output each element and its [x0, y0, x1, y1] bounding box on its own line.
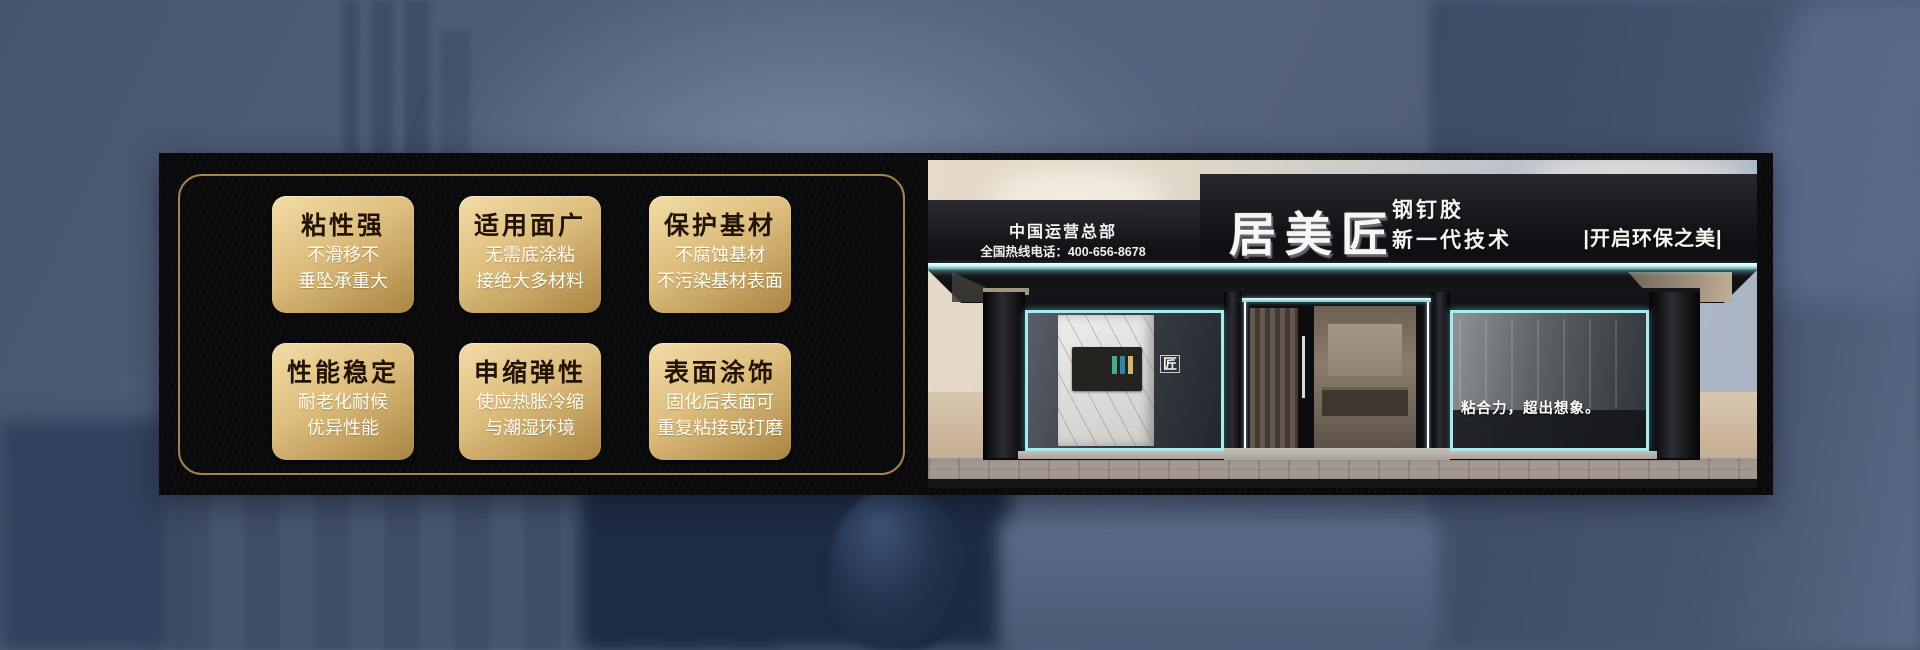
- card-title: 申缩弹性: [459, 353, 601, 389]
- card-line: 不腐蚀基材: [649, 242, 791, 268]
- facade-pillar: [1649, 292, 1700, 458]
- feature-card-elastic: 申缩弹性 使应热胀冷缩 与潮湿环境: [459, 343, 601, 460]
- card-line: 无需底涂粘: [459, 242, 601, 268]
- display-window-left: 匠: [1025, 310, 1224, 451]
- tagline-line: 新一代技术: [1392, 226, 1512, 256]
- door-step: [1224, 448, 1450, 460]
- sign-slogan: |开启环保之美|: [1553, 222, 1753, 251]
- door-led-strip-top: [1242, 298, 1431, 302]
- card-title: 表面涂饰: [649, 353, 791, 389]
- display-window-right: 粘合力，超出想象。: [1450, 310, 1649, 451]
- door-handle: [1302, 336, 1305, 398]
- background-left-shadow: [0, 420, 170, 650]
- display-item: [1128, 356, 1133, 374]
- feature-card-protect-substrate: 保护基材 不腐蚀基材 不污染基材表面: [649, 196, 791, 313]
- card-title: 性能稳定: [272, 353, 414, 389]
- card-line: 垂坠承重大: [272, 268, 414, 294]
- facade-pillar: [1431, 292, 1450, 458]
- interior-counter: [1322, 390, 1408, 416]
- card-line: 重复粘接或打磨: [649, 415, 791, 441]
- product-display-board: [1072, 347, 1142, 391]
- card-line: 与潮湿环境: [459, 415, 601, 441]
- window-slogan-text: 粘合力，超出想象。: [1461, 397, 1646, 418]
- door-side-blinds: [1250, 308, 1298, 450]
- door-glass: [1314, 306, 1416, 450]
- feature-card-paintable: 表面涂饰 固化后表面可 重复粘接或打磨: [649, 343, 791, 460]
- card-line: 不滑移不: [272, 242, 414, 268]
- facade-pillar: [1224, 292, 1242, 458]
- display-item: [1112, 356, 1117, 374]
- door-led-strip-left: [1244, 302, 1246, 452]
- display-item: [1120, 356, 1125, 374]
- interior-shelving: [1459, 319, 1640, 408]
- card-title: 粘性强: [272, 206, 414, 242]
- card-line: 耐老化耐候: [272, 389, 414, 415]
- photo-bottom-shadow: [928, 479, 1757, 488]
- card-line: 不污染基材表面: [649, 268, 791, 294]
- card-title: 保护基材: [649, 206, 791, 242]
- interior-back-wall: [1328, 324, 1402, 376]
- background-table: [1000, 520, 1440, 650]
- entrance-door: [1242, 298, 1431, 456]
- hotline-number: 全国热线电话：400-656-8678: [930, 241, 1196, 260]
- card-line: 固化后表面可: [649, 389, 791, 415]
- feature-card-adhesion: 粘性强 不滑移不 垂坠承重大: [272, 196, 414, 313]
- background-vase: [830, 488, 965, 650]
- brand-logo-glyph: 匠: [1160, 355, 1180, 373]
- storefront-photo: 匠 粘合力，超出想象。 中国运营总部 全国热线电话：400-656-8678: [928, 160, 1757, 488]
- product-name: 钢钉胶: [1392, 196, 1512, 226]
- brand-name: 居美匠: [1229, 196, 1397, 265]
- feature-card-wide-use: 适用面广 无需底涂粘 接绝大多材料: [459, 196, 601, 313]
- window-sill: [1443, 451, 1657, 459]
- card-title: 适用面广: [459, 206, 601, 242]
- window-sill: [1018, 451, 1232, 459]
- product-tagline: 钢钉胶 新一代技术: [1392, 196, 1512, 256]
- marble-panel: [1058, 315, 1154, 446]
- card-line: 优异性能: [272, 415, 414, 441]
- hq-label: 中国运营总部: [934, 218, 1192, 242]
- facade-pillar: [983, 292, 1025, 458]
- feature-card-stable: 性能稳定 耐老化耐候 优异性能: [272, 343, 414, 460]
- door-led-strip-right: [1427, 302, 1429, 452]
- promo-banner: 粘性强 不滑移不 垂坠承重大 适用面广 无需底涂粘 接绝大多材料 保护基材 不腐…: [159, 153, 1773, 495]
- card-line: 使应热胀冷缩: [459, 389, 601, 415]
- card-line: 接绝大多材料: [459, 268, 601, 294]
